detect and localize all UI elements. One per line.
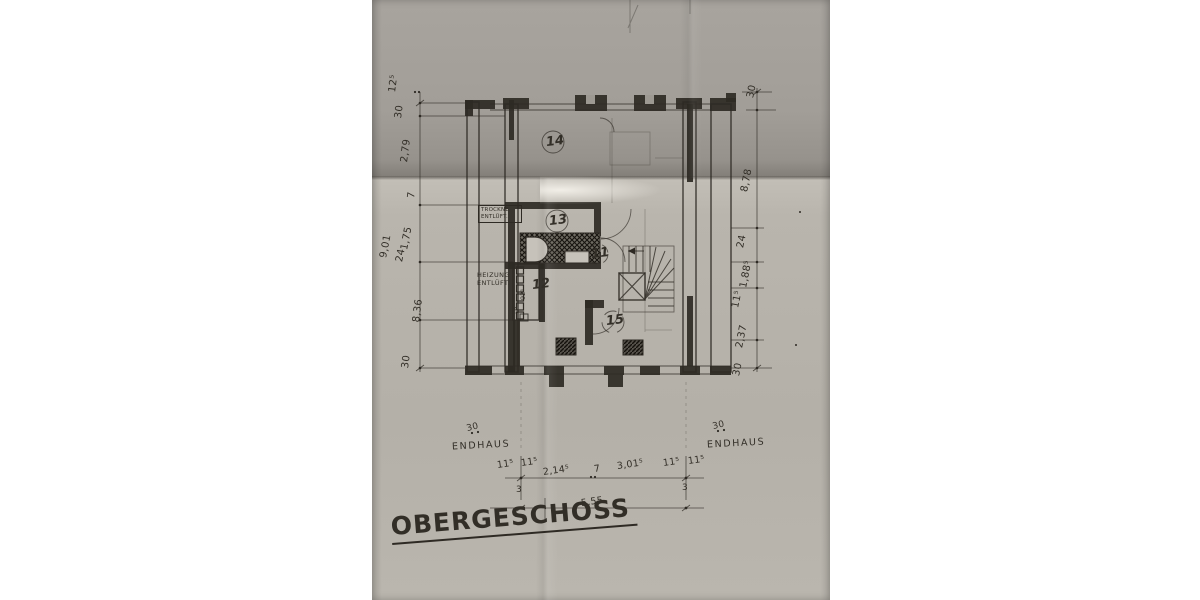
bathroom-hatch [520, 233, 600, 263]
dim-bottom-sub-0: 3 [516, 485, 522, 495]
dim-bottom-0: 11⁵ [496, 458, 514, 471]
label-shaft-width: 92⁵ [519, 289, 527, 300]
label-heizung-entlueft: HEIZUNG ENTLÜFT. [477, 271, 510, 288]
dim-left-1: 30 [393, 104, 406, 119]
dim-left-3: 7 [406, 191, 418, 199]
label-heizung-line2: ENTLÜFT. [477, 279, 510, 287]
room-number-14: 14 [545, 133, 565, 150]
bathtub [526, 237, 548, 262]
room-number-12: 12 [531, 276, 551, 293]
staircase [619, 246, 674, 312]
room-number-15: 15 [605, 312, 625, 329]
label-trockner-entlueft: TROCKNE ENTLÜFT. [478, 205, 522, 223]
label-trockner-line1: TROCKNE [481, 207, 519, 214]
stray-pencil-marks [628, 0, 801, 346]
label-trockner-line2: ENTLÜFT. [481, 214, 519, 221]
dim-bottom-sub-1: 3 [682, 483, 688, 493]
dim-left-0: 12⁵ [387, 74, 400, 93]
dim-bottom-1: 11⁵ [520, 456, 538, 469]
dim-bottom-5: 11⁵ [662, 456, 680, 469]
photo-of-floorplan: 14 13 11 12 15 TROCKNE ENTLÜFT. HEIZUNG … [0, 0, 1200, 600]
radiators [556, 338, 643, 355]
dim-left-8: 30 [400, 354, 413, 369]
room-number-11: 11 [590, 245, 610, 262]
room-number-13: 13 [548, 212, 568, 229]
dim-bottom-6: 11⁵ [687, 454, 705, 467]
sink [565, 251, 589, 263]
dim-bottom-3: 7 [593, 463, 601, 475]
